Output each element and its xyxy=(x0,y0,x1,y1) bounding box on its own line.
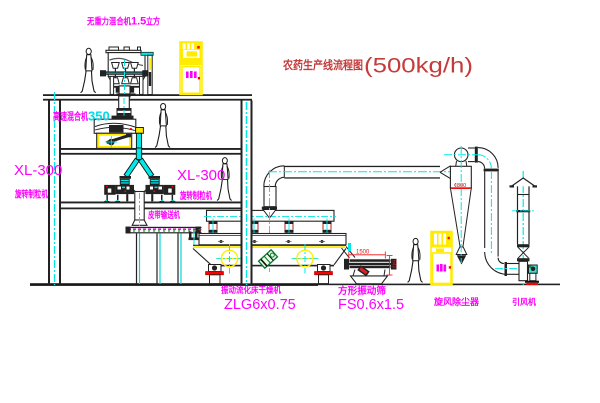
svg-text:方形振动筛: 方形振动筛 xyxy=(338,285,386,297)
svg-text:立方: 立方 xyxy=(146,16,160,27)
svg-text:1500: 1500 xyxy=(356,250,370,256)
svg-text:旋风除尘器: 旋风除尘器 xyxy=(433,296,480,307)
svg-text:振动流化床干燥机: 振动流化床干燥机 xyxy=(221,285,281,295)
svg-text:XL-300: XL-300 xyxy=(14,162,62,179)
svg-text:无重力混合机: 无重力混合机 xyxy=(86,16,131,27)
svg-text:(500kg/h): (500kg/h) xyxy=(364,54,473,78)
svg-text:540: 540 xyxy=(391,260,397,269)
svg-text:高速混合机: 高速混合机 xyxy=(53,110,88,123)
svg-text:旋转制粒机: 旋转制粒机 xyxy=(179,190,212,202)
svg-text:引风机: 引风机 xyxy=(512,297,536,307)
svg-text:350: 350 xyxy=(88,109,110,124)
svg-text:XL-300: XL-300 xyxy=(177,167,225,184)
svg-text:¢800: ¢800 xyxy=(454,183,466,189)
svg-text:皮带输送机: 皮带输送机 xyxy=(147,209,180,220)
svg-text:农药生产线流程图: 农药生产线流程图 xyxy=(282,58,363,72)
svg-text:1.5: 1.5 xyxy=(131,16,146,28)
svg-text:FS0.6x1.5: FS0.6x1.5 xyxy=(338,297,404,313)
svg-text:ZLG6x0.75: ZLG6x0.75 xyxy=(224,297,296,313)
svg-text:旋转制粒机: 旋转制粒机 xyxy=(14,189,48,201)
